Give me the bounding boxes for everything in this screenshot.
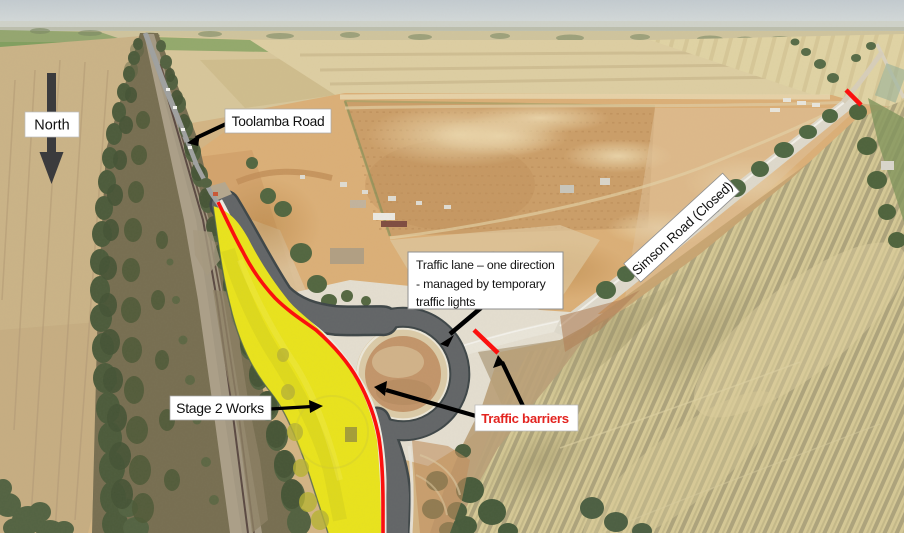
svg-text:Traffic barriers: Traffic barriers	[481, 411, 569, 426]
svg-text:- managed by temporary: - managed by temporary	[416, 277, 547, 291]
svg-text:Stage 2 Works: Stage 2 Works	[176, 400, 264, 416]
svg-text:North: North	[34, 118, 69, 134]
svg-text:Toolamba Road: Toolamba Road	[232, 114, 325, 129]
svg-text:Traffic lane – one direction: Traffic lane – one direction	[416, 258, 555, 272]
svg-text:traffic lights: traffic lights	[416, 295, 475, 309]
